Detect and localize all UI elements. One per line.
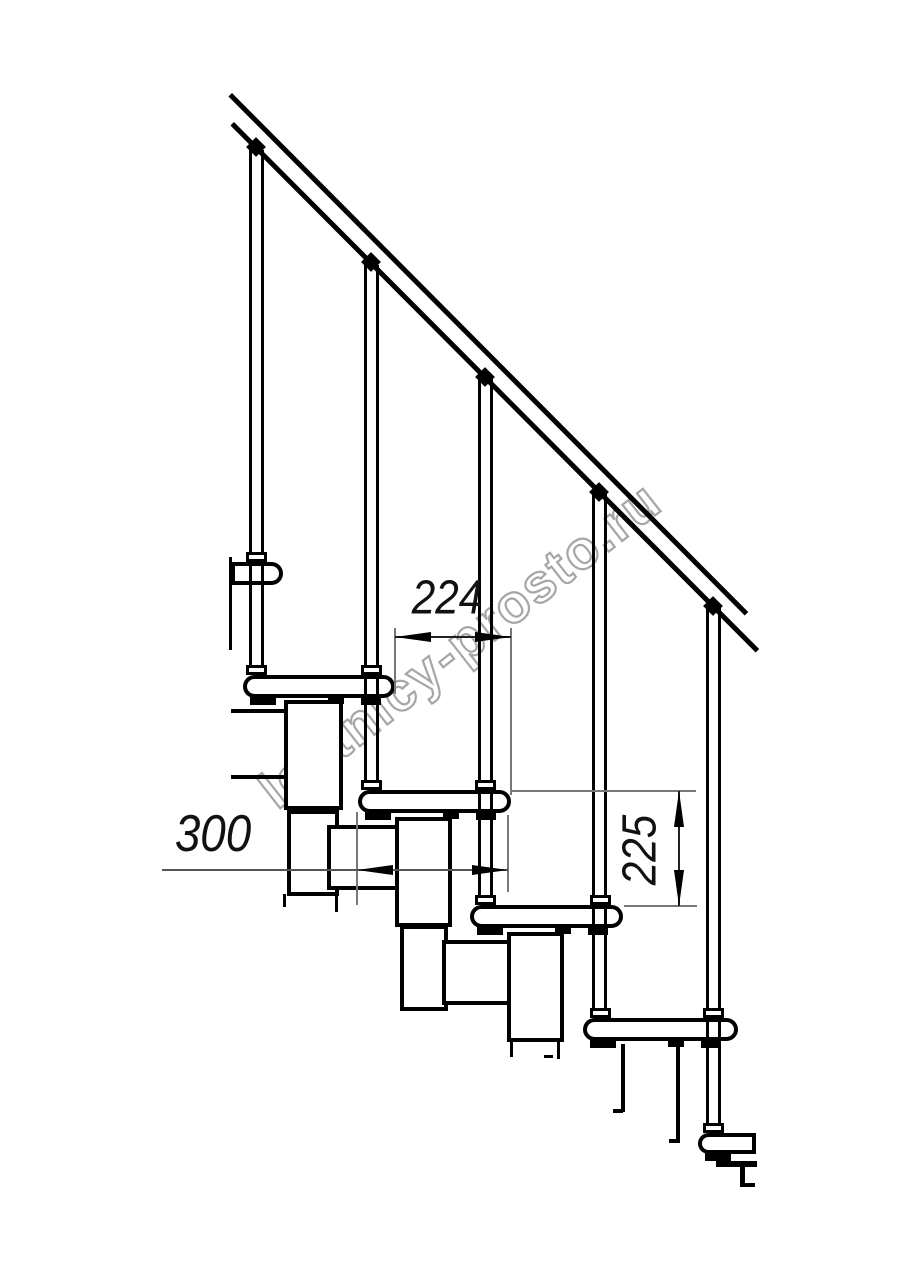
- module-box-under-step2-lower: [400, 925, 448, 1011]
- step1-mount-bit: [250, 697, 276, 705]
- step4-mount-bit: [590, 1040, 616, 1048]
- baluster4-base-collar: [590, 1008, 611, 1018]
- module-under-step5-stub-bar: [716, 1161, 757, 1167]
- handrail-lower-line: [230, 122, 759, 653]
- break-line-under-step1-left: [283, 894, 286, 907]
- baluster3-base-collar: [475, 895, 496, 905]
- baluster-2: [364, 265, 379, 790]
- step3-mount-bit: [477, 927, 503, 935]
- baluster1-pass-collar: [246, 552, 267, 562]
- baluster-4: [592, 492, 607, 1018]
- dim-225-ext-top: [512, 790, 696, 792]
- baluster2-base-collar: [361, 780, 382, 790]
- step5-mount-bit: [705, 1153, 731, 1161]
- break-line-under-step3-left: [510, 1040, 513, 1057]
- baluster3-pass-collar: [475, 780, 496, 790]
- baluster5-pass-collar: [703, 1008, 724, 1018]
- baluster2-pass-collar: [361, 665, 382, 675]
- dim-225-arrow-down: [674, 870, 684, 906]
- step2-mount-nub: [443, 813, 459, 819]
- baluster4-pass-collar: [590, 895, 611, 905]
- step3-mount-nub: [555, 928, 571, 934]
- module-under-step4-right-edge: [676, 1040, 680, 1143]
- dim-225-ext-bottom: [624, 905, 697, 907]
- dim-225-arrow-up: [674, 791, 684, 827]
- staircase-technical-drawing: lestnicy-prosto.ru: [0, 0, 914, 1280]
- dim-300-ext-left: [356, 812, 358, 905]
- step4-mount-nub: [668, 1041, 684, 1047]
- dim-300-line: [162, 869, 508, 871]
- break-line-under-step3-right: [557, 1040, 560, 1059]
- baluster5-base-collar: [703, 1123, 724, 1133]
- dim-300-arrow-left: [357, 865, 393, 875]
- step1-mount-nub: [328, 698, 344, 704]
- baluster-5: [706, 607, 721, 1133]
- dim-224-arrow-left: [395, 632, 431, 642]
- break-hook-step5: [744, 1183, 755, 1187]
- dim-224-ext-right: [510, 628, 512, 795]
- break-hook-step4-left: [613, 1109, 623, 1113]
- dim-224-arrow-right: [475, 632, 511, 642]
- module-under-step4-left-edge: [621, 1044, 625, 1112]
- baluster-3: [478, 379, 493, 905]
- module-jog-step1-step2: [327, 825, 403, 890]
- module-box-under-step3: [507, 932, 564, 1042]
- break-hook-step4-right: [669, 1139, 679, 1143]
- dim-300-arrow-right: [472, 865, 508, 875]
- step-5-cut: [698, 1133, 756, 1154]
- module-jog-top-line-cut: [231, 709, 288, 713]
- module-box-under-step1: [284, 700, 343, 810]
- break-hook-under-step3: [544, 1055, 553, 1058]
- baluster-1: [249, 150, 264, 675]
- module-box-under-step2: [395, 817, 452, 927]
- dim-224-label: 224: [412, 571, 482, 626]
- dim-225-label: 225: [613, 815, 668, 885]
- dim-300-ext-right: [507, 815, 509, 892]
- module-jog-bottom-line-cut: [231, 775, 284, 779]
- break-line-under-step1-right: [335, 894, 338, 912]
- dim-300-label: 300: [175, 804, 251, 864]
- step2-mount-bit: [365, 812, 391, 820]
- baluster1-base-collar: [246, 665, 267, 675]
- break-line-top-landing: [229, 557, 232, 650]
